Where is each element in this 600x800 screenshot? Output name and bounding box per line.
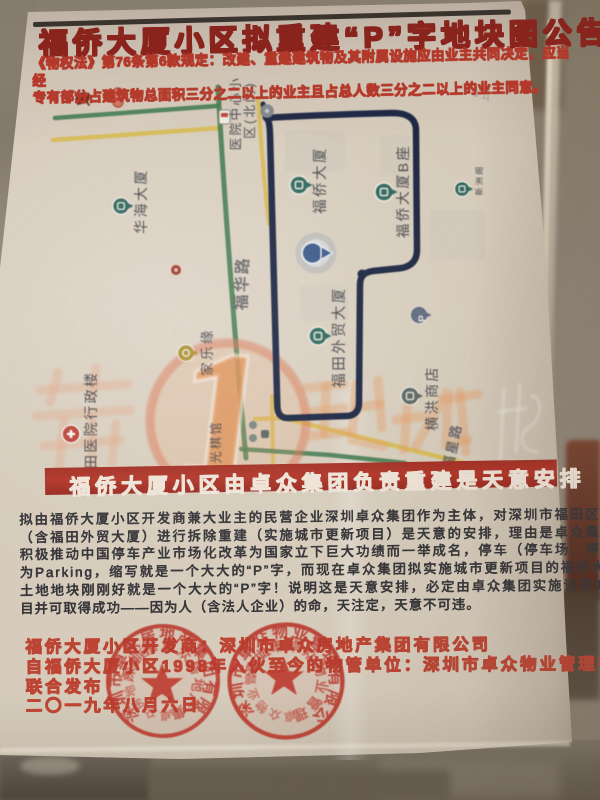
svg-text:福侨大厦B座: 福侨大厦B座 bbox=[395, 144, 411, 238]
svg-text:福田医院行政楼: 福田医院行政楼 bbox=[83, 371, 99, 478]
svg-text:福华路: 福华路 bbox=[231, 256, 252, 312]
svg-text:P: P bbox=[416, 315, 428, 322]
svg-text:横洪商店: 横洪商店 bbox=[424, 365, 440, 431]
svg-text:福侨大厦: 福侨大厦 bbox=[312, 146, 329, 214]
svg-text:福田外贸大厦: 福田外贸大厦 bbox=[331, 286, 348, 387]
svg-text:华海大厦: 华海大厦 bbox=[133, 168, 149, 234]
svg-text:1: 1 bbox=[164, 306, 283, 478]
svg-text:新洲阁: 新洲阁 bbox=[474, 164, 484, 195]
svg-text:家乐缘: 家乐缘 bbox=[199, 328, 215, 376]
